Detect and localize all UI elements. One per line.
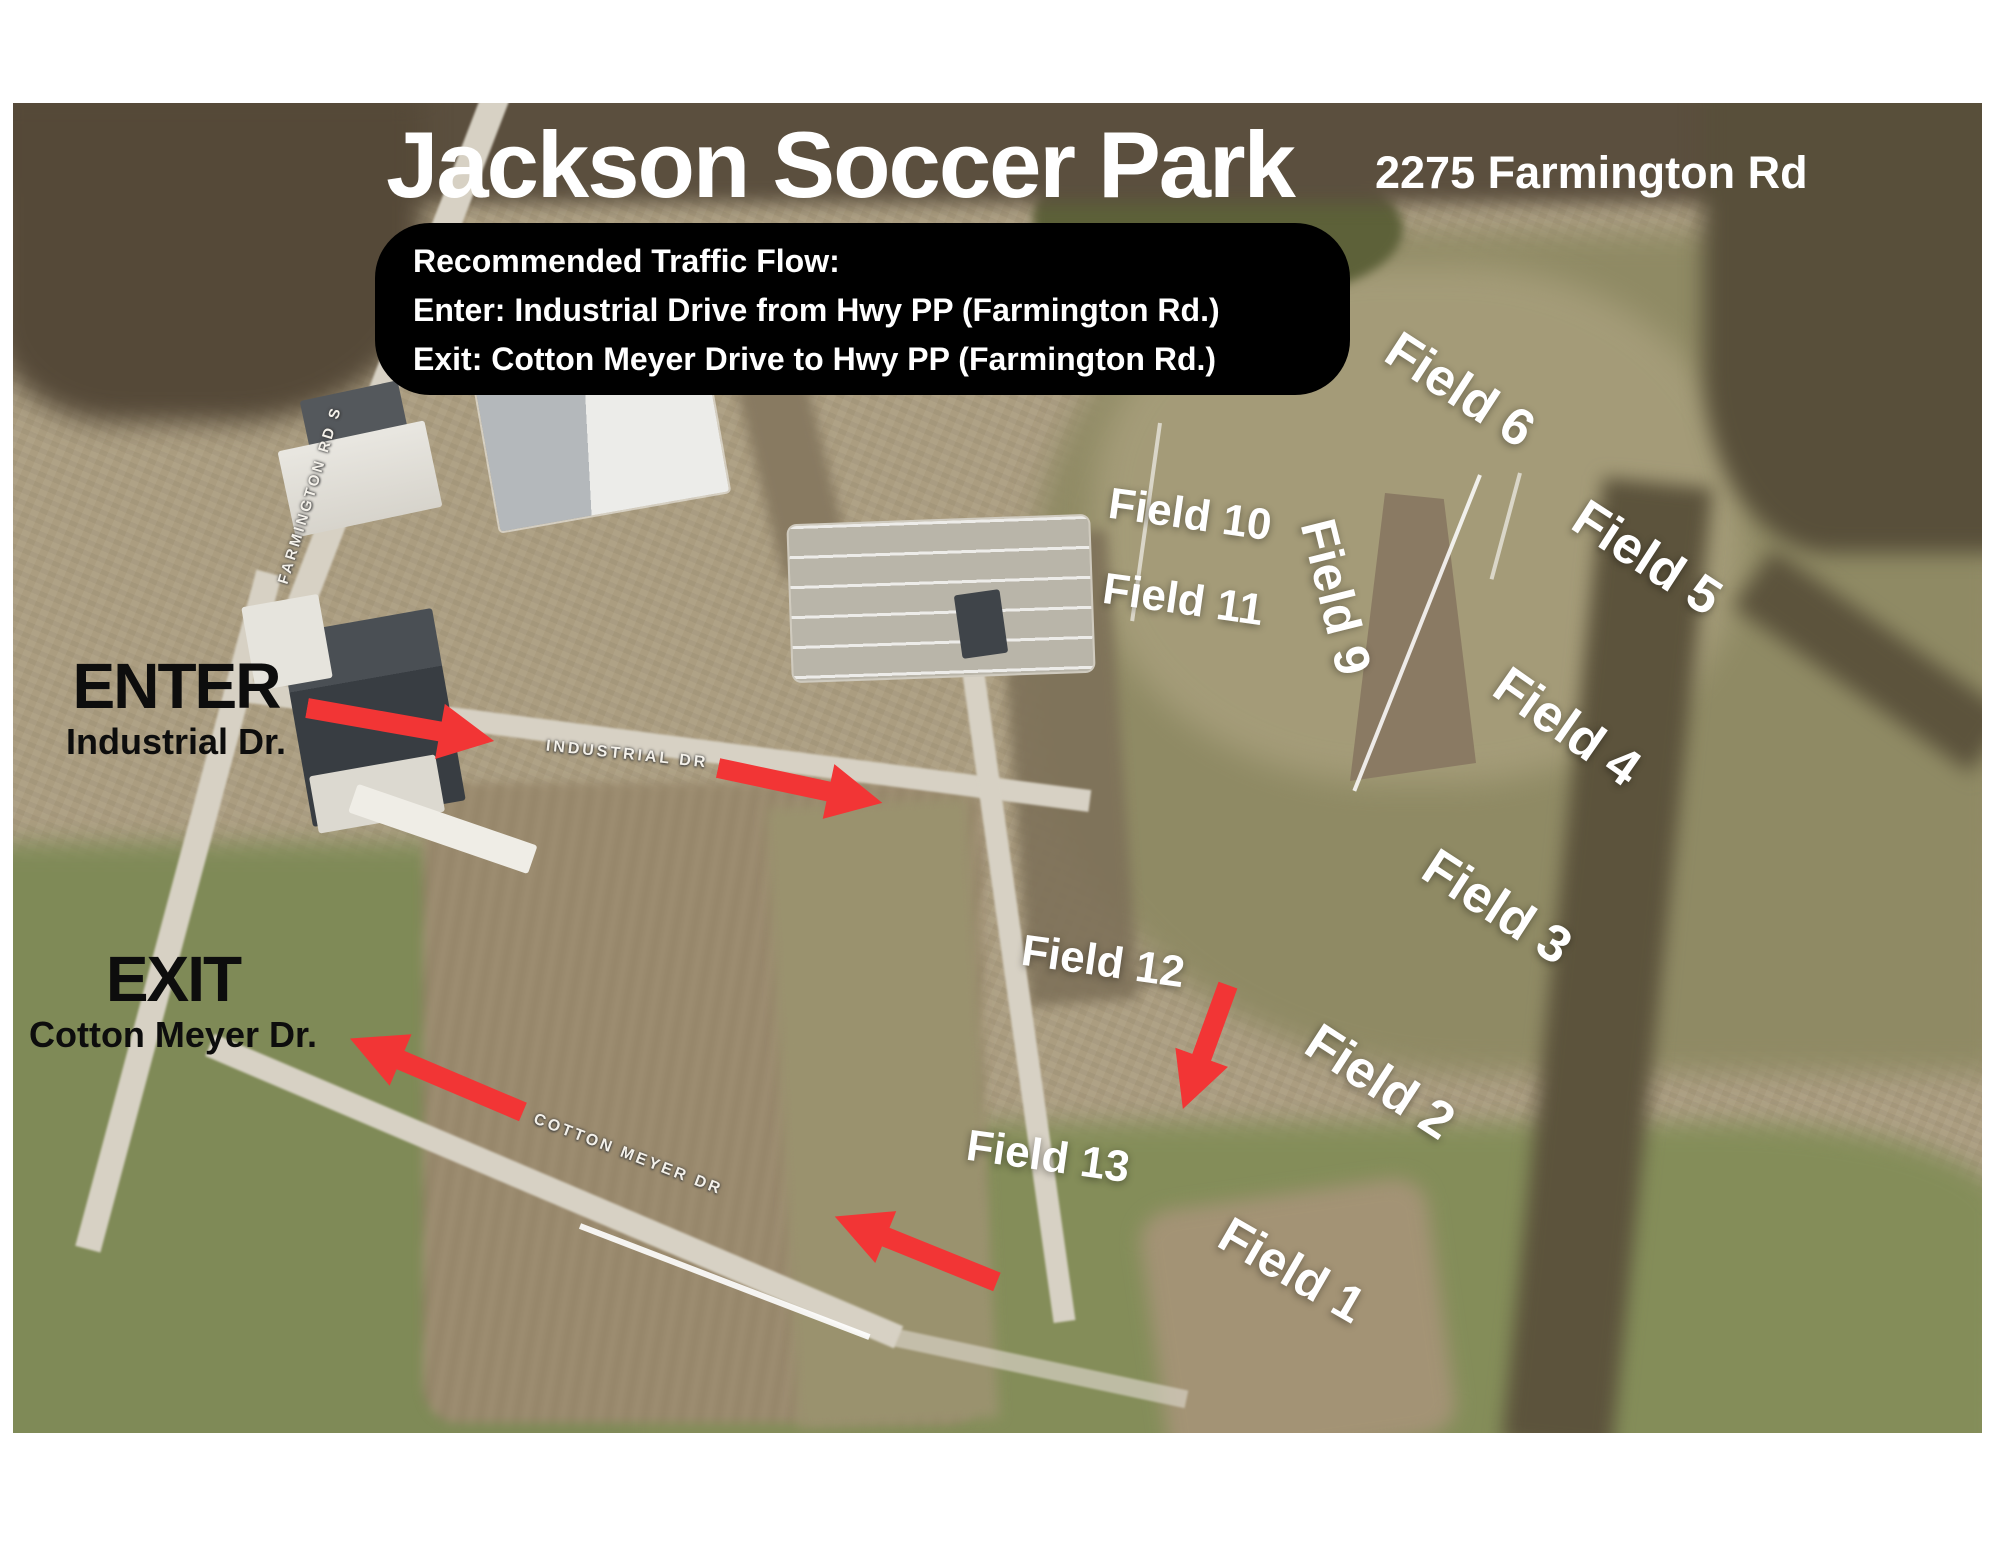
page-title: Jackson Soccer Park [386,111,1294,219]
exit-label: EXIT [29,948,317,1010]
enter-label: ENTER [66,655,286,717]
traffic-flow-callout: Recommended Traffic Flow: Enter: Industr… [375,223,1350,395]
exit-street-label: Cotton Meyer Dr. [29,1014,317,1056]
traffic-flow-exit-line: Exit: Cotton Meyer Drive to Hwy PP (Farm… [413,335,1350,384]
aerial-map: FARMINGTON RD S INDUSTRIAL DR COTTON MEY… [13,103,1982,1433]
enter-callout: ENTER Industrial Dr. [66,655,286,763]
enter-street-label: Industrial Dr. [66,721,286,763]
traffic-flow-heading: Recommended Traffic Flow: [413,237,1350,286]
tree-clump-topleft [13,103,423,423]
parking-lot [788,516,1093,681]
exit-callout: EXIT Cotton Meyer Dr. [29,948,317,1056]
concession-building [954,589,1008,659]
flyer-page: FARMINGTON RD S INDUSTRIAL DR COTTON MEY… [0,0,2000,1545]
traffic-flow-enter-line: Enter: Industrial Drive from Hwy PP (Far… [413,286,1350,335]
park-address: 2275 Farmington Rd [1375,147,1808,199]
